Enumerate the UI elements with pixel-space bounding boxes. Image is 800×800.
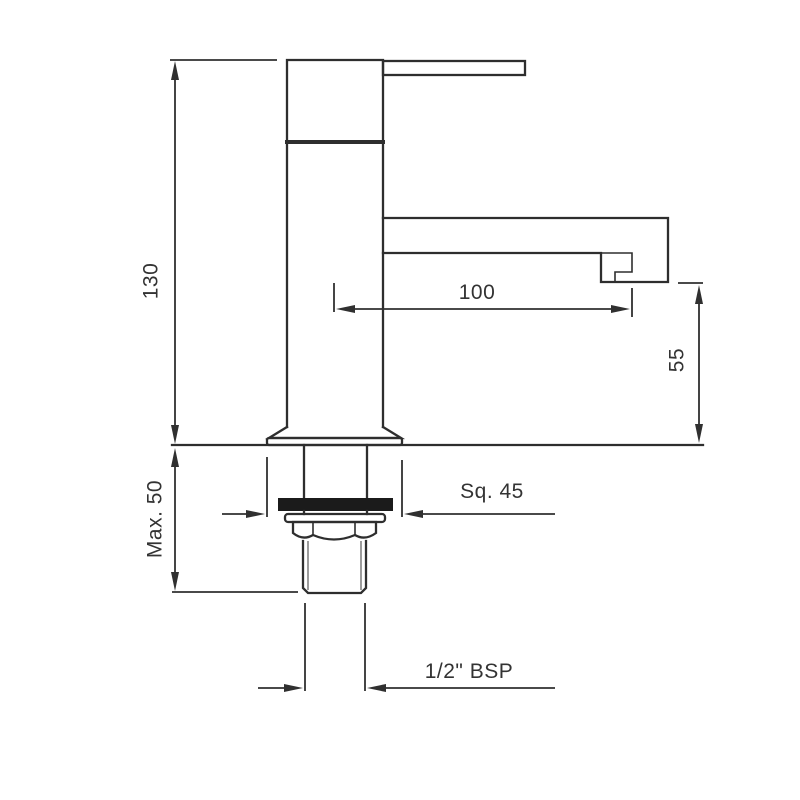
bsp-label: 1/2" BSP [425, 660, 514, 683]
tap-handle [383, 61, 525, 75]
dimension-inlet-thread: 1/2" BSP [258, 603, 555, 692]
arrow-up-icon [695, 285, 703, 304]
arrow-left-icon [367, 684, 386, 692]
dimension-max-deck-thickness: Max. 50 [144, 448, 298, 592]
shank-upper [304, 445, 367, 498]
sq45-label: Sq. 45 [460, 480, 524, 503]
tap-dimension-drawing: 130 Max. 50 100 55 [0, 0, 800, 800]
arrow-up-icon [171, 61, 179, 80]
fixing-assembly [278, 445, 393, 593]
dim50-label: Max. 50 [144, 480, 167, 558]
arrow-right-icon [284, 684, 303, 692]
spout-aerator-detail [601, 253, 632, 282]
arrow-up-icon [171, 448, 179, 467]
dim100-label: 100 [459, 281, 496, 304]
tap-base [172, 427, 703, 445]
dimension-spout-reach: 100 [334, 281, 632, 317]
base-flare [269, 427, 401, 438]
thread-root-lines [308, 541, 361, 590]
flat-washer [285, 514, 385, 522]
arrow-left-icon [404, 510, 423, 518]
arrow-down-icon [695, 424, 703, 443]
dimension-overall-height: 130 [140, 60, 277, 444]
tap-body-outline [287, 60, 383, 427]
arrow-left-icon [336, 305, 355, 313]
arrow-down-icon [171, 425, 179, 444]
arrow-right-icon [611, 305, 630, 313]
dimension-spout-height: 55 [666, 283, 703, 443]
fixing-nut [293, 522, 376, 540]
arrow-down-icon [171, 572, 179, 591]
fixing-nut-facets [313, 522, 355, 535]
tap-body [287, 60, 525, 427]
dim130-label: 130 [140, 263, 163, 300]
drawing-canvas: 130 Max. 50 100 55 [0, 0, 800, 800]
dim55-label: 55 [666, 348, 689, 372]
rubber-gasket [278, 498, 393, 511]
tap-spout [383, 218, 668, 282]
arrow-right-icon [246, 510, 265, 518]
threaded-shank [303, 541, 366, 593]
